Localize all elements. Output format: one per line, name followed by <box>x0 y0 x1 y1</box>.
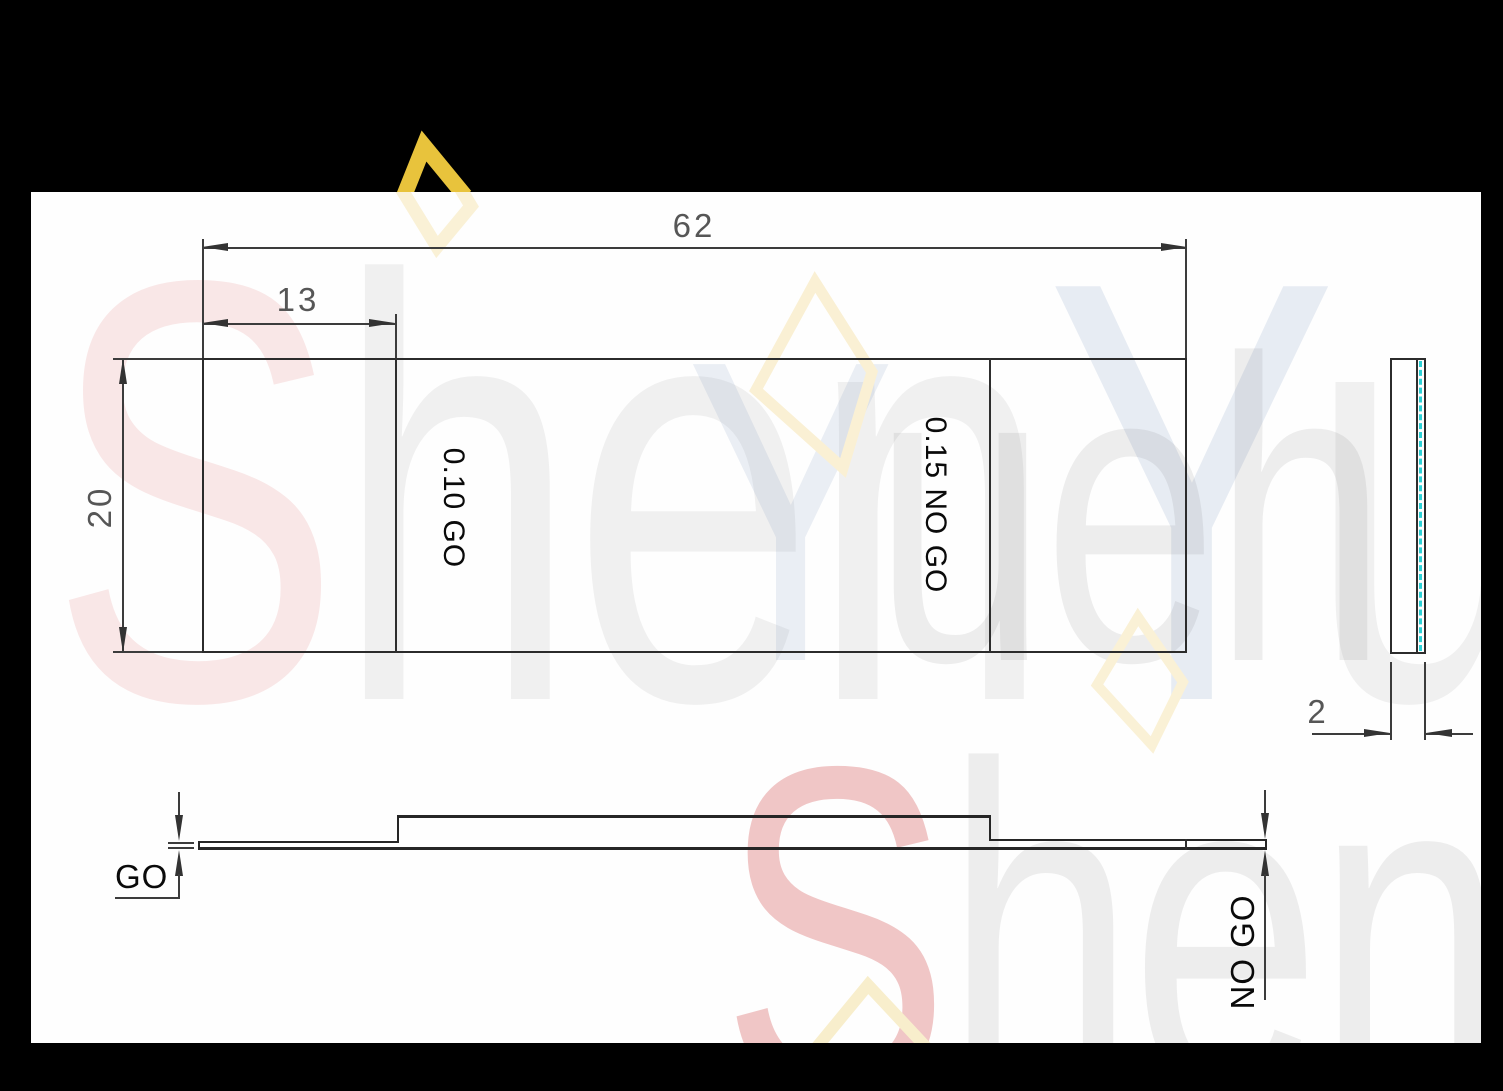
foil-layer-line <box>1416 359 1418 653</box>
extension-line <box>1390 662 1392 740</box>
arrowhead-icon <box>202 319 228 327</box>
arrowhead-icon <box>369 319 395 327</box>
leader-underline <box>115 897 180 899</box>
extension-line <box>202 239 204 358</box>
witness-mark <box>168 847 194 849</box>
dimension-line <box>202 323 395 325</box>
extension-line <box>113 651 202 653</box>
arrowhead-icon <box>1426 729 1452 737</box>
arrowhead-icon <box>1161 243 1187 251</box>
nogo-section-divider-line <box>989 358 991 653</box>
brand-logo-chevron <box>0 0 1503 192</box>
arrowhead-icon <box>175 850 183 876</box>
extension-line <box>395 314 397 358</box>
arrowhead-icon <box>202 243 228 251</box>
go-marking-label: 0.10 GO <box>436 448 470 568</box>
nogo-tip-end-edge <box>1265 839 1267 850</box>
arrowhead-icon <box>175 815 183 841</box>
go-section-divider-line <box>395 358 397 653</box>
leader-line <box>178 874 180 899</box>
page-background: ShenYueh Yueh ShenYueh 0.10 GO 0.15 NO G… <box>0 0 1503 1091</box>
extension-line <box>113 358 202 360</box>
arrowhead-icon <box>1261 813 1269 839</box>
diamond-logo-icon <box>402 192 471 247</box>
cyan-layer-dashed-line <box>1419 361 1422 651</box>
arrowhead-icon <box>119 627 127 653</box>
diamond-logo-icon <box>798 985 940 1043</box>
nogo-tip-top-edge <box>989 839 1267 841</box>
arrowhead-icon <box>1364 729 1390 737</box>
drawing-canvas: ShenYueh Yueh ShenYueh 0.10 GO 0.15 NO G… <box>31 192 1481 1043</box>
nogo-tip-division-line <box>1185 839 1187 850</box>
dimension-line <box>202 247 1187 249</box>
go-tip-label: GO <box>115 858 168 896</box>
top-border-strip <box>0 0 1503 192</box>
chevron-icon <box>404 146 465 192</box>
dimension-value: 2 <box>1307 693 1328 731</box>
nogo-marking-label: 0.15 NO GO <box>918 417 952 594</box>
dimension-value: 62 <box>673 207 716 245</box>
leader-line <box>1264 790 1266 815</box>
arrowhead-icon <box>119 358 127 384</box>
go-step-edge <box>397 815 399 843</box>
dimension-value: 20 <box>81 486 119 529</box>
witness-mark <box>168 842 194 844</box>
arrowhead-icon <box>1261 850 1269 876</box>
top-view-outline <box>202 358 1187 653</box>
extension-line <box>1185 239 1187 358</box>
leader-line <box>1264 874 1266 1000</box>
profile-bottom-edge <box>198 847 1267 850</box>
dimension-line <box>122 358 124 653</box>
dimension-value: 13 <box>277 281 320 319</box>
nogo-step-edge <box>989 815 991 841</box>
go-tip-end-edge <box>198 841 200 850</box>
leader-line <box>178 792 180 817</box>
nogo-tip-label: NO GO <box>1224 894 1262 1009</box>
body-top-edge <box>397 815 991 818</box>
go-tip-top-edge <box>198 841 398 843</box>
